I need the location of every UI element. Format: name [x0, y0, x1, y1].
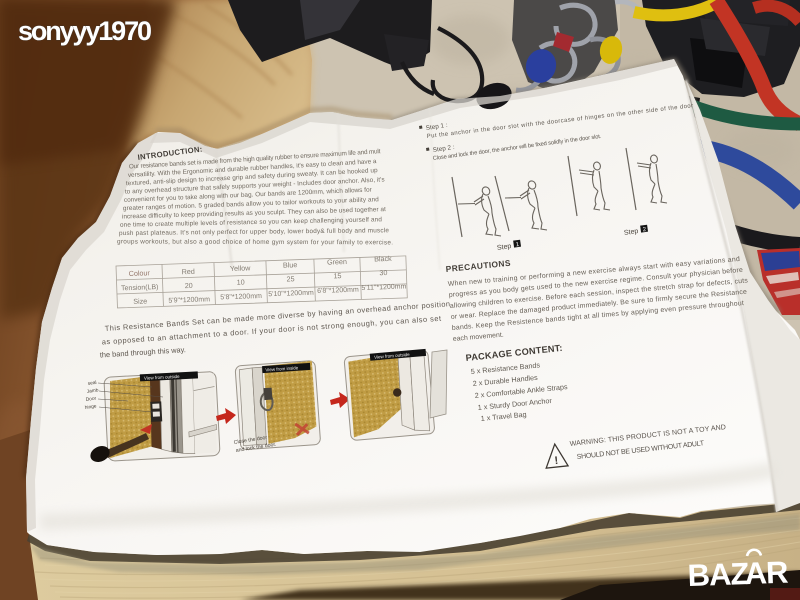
svg-text:25: 25 — [286, 274, 294, 283]
svg-text:Black: Black — [374, 254, 392, 264]
svg-text:6'8"*1200mm: 6'8"*1200mm — [317, 287, 359, 295]
svg-text:Blue: Blue — [283, 260, 298, 269]
svg-text:AR: AR — [744, 555, 789, 591]
svg-text:sonyyy1970: sonyyy1970 — [18, 16, 152, 46]
svg-text:5'8"*1200mm: 5'8"*1200mm — [220, 293, 262, 301]
svg-text:seal: seal — [87, 380, 97, 387]
svg-text:20: 20 — [185, 281, 193, 290]
svg-text:Red: Red — [181, 267, 194, 276]
svg-text:Yellow: Yellow — [230, 263, 252, 273]
svg-text:30: 30 — [379, 268, 387, 277]
svg-text:Green: Green — [327, 257, 347, 267]
svg-text:groups workouts, but also a go: groups workouts, but also a good choice … — [117, 238, 393, 246]
svg-text:15: 15 — [333, 271, 341, 280]
svg-text:5'9"*1200mm: 5'9"*1200mm — [168, 296, 210, 304]
svg-text:10: 10 — [236, 278, 244, 287]
svg-text:Colour: Colour — [129, 268, 151, 278]
svg-text:BAZ: BAZ — [687, 556, 750, 593]
svg-text:Tension(LB): Tension(LB) — [121, 284, 159, 292]
svg-text:Size: Size — [133, 296, 147, 305]
